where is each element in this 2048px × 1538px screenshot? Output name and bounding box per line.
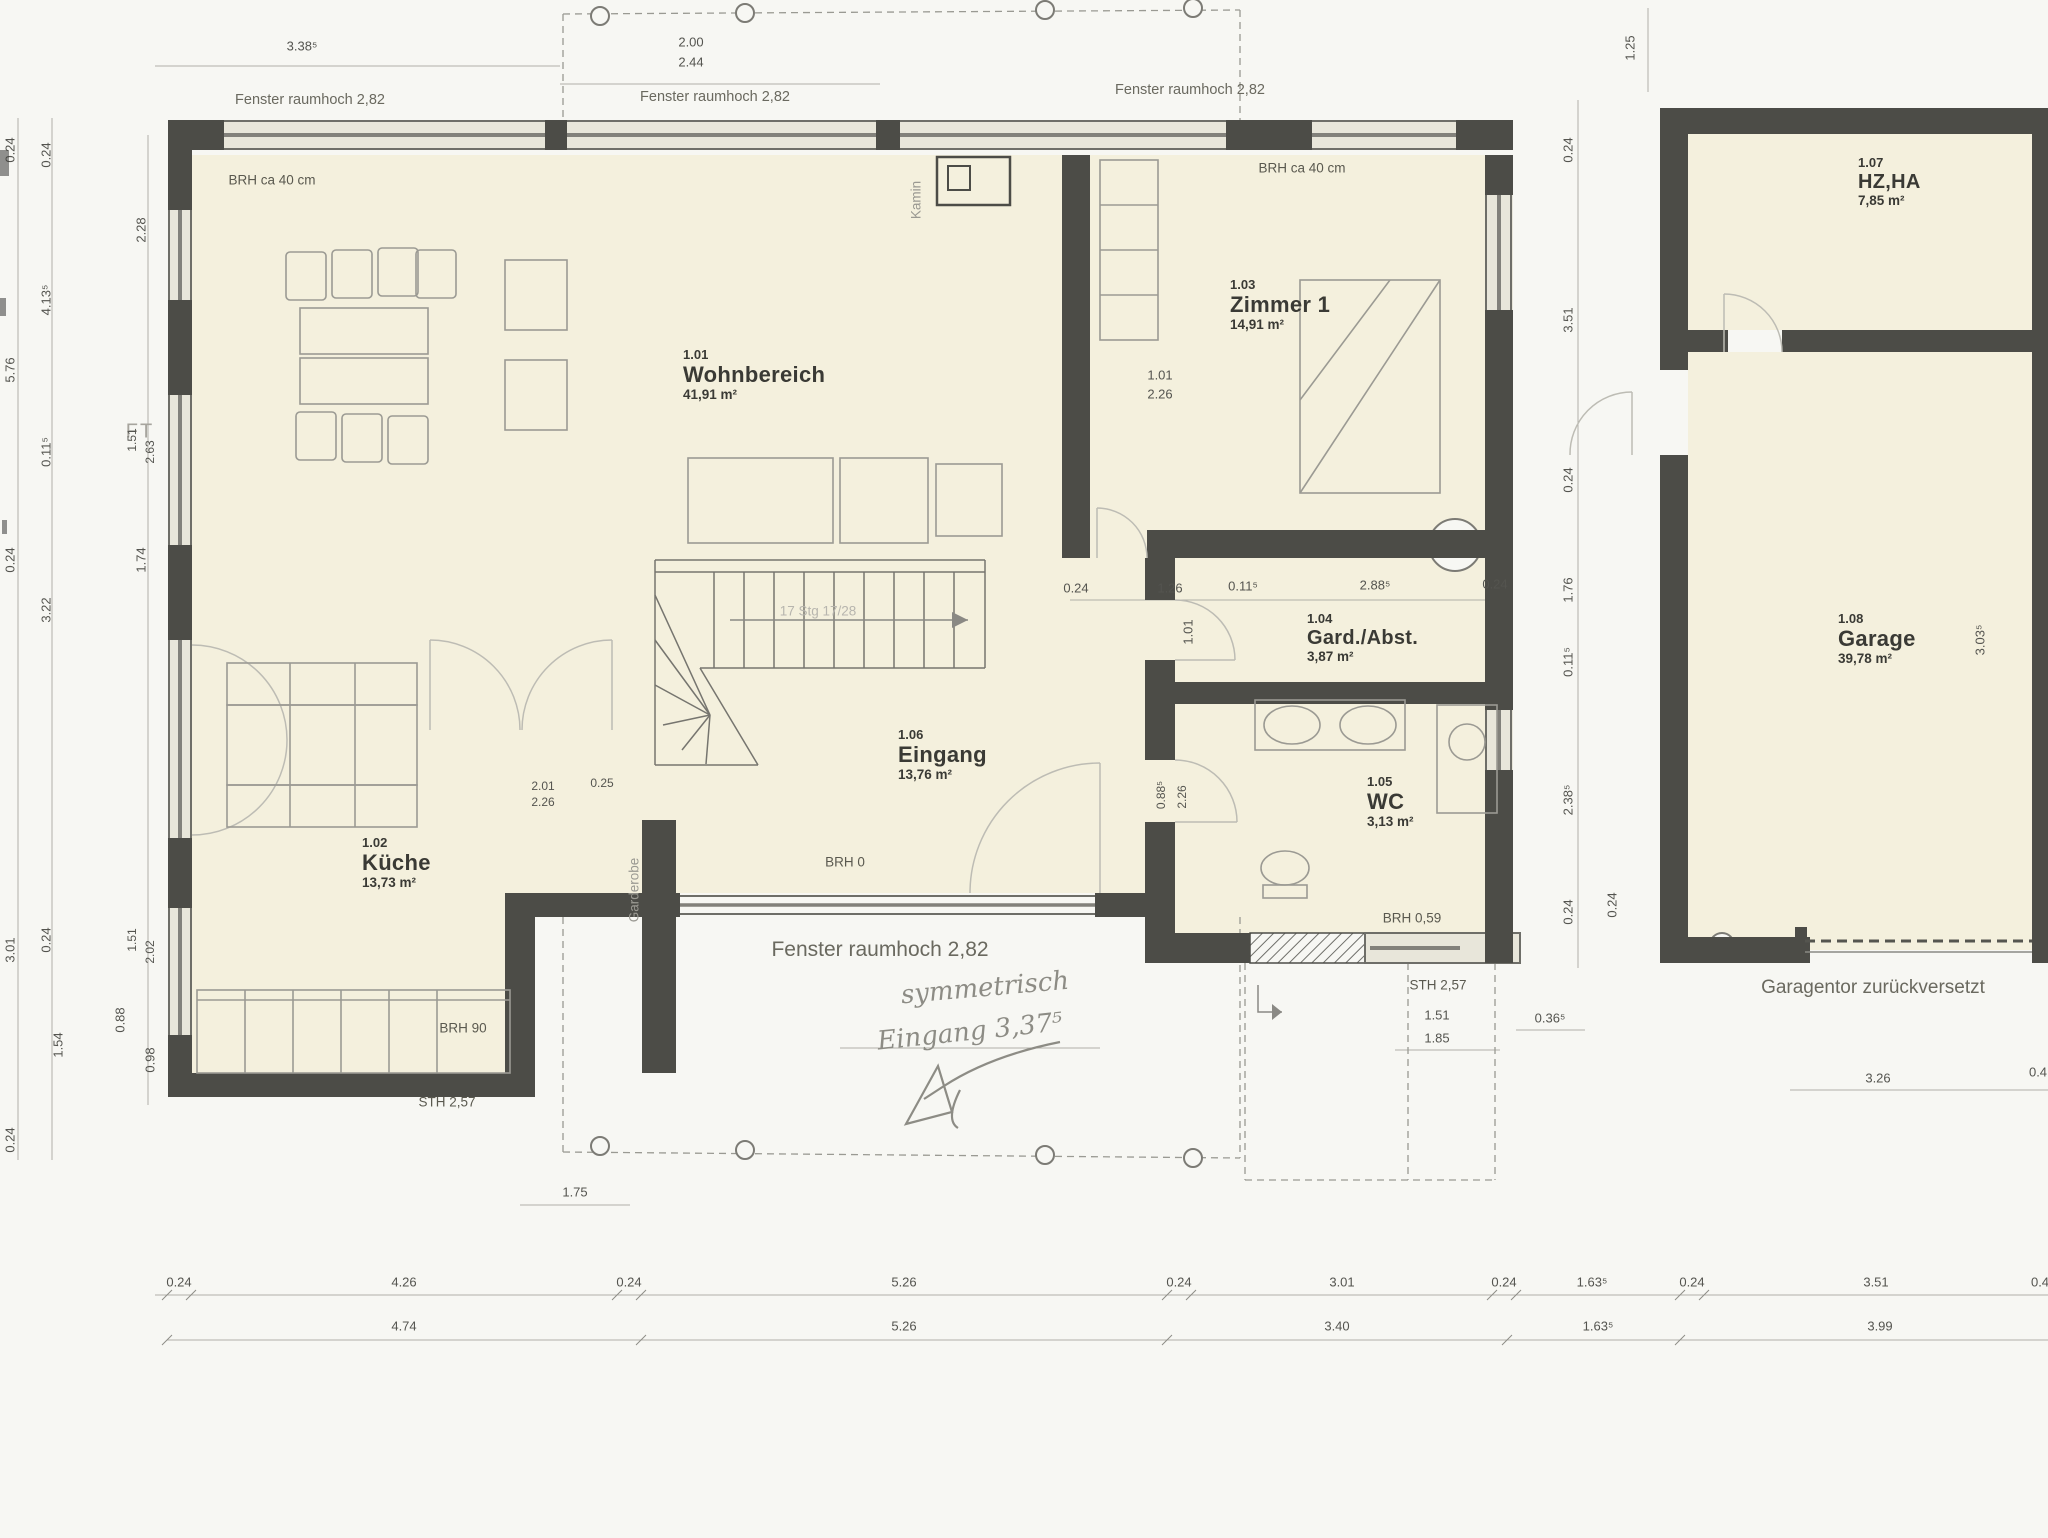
- dim-left-mid-1: 4.13⁵: [39, 285, 54, 316]
- floor-plan-scan: 1.01 Wohnbereich 41,91 m² 1.02 Küche 13,…: [0, 0, 2048, 1538]
- dim-b1-7: 1.63⁵: [1577, 1275, 1608, 1290]
- lintel-label-kitchen: STH 2,57: [418, 1095, 475, 1110]
- dim-top-1: 2.00: [678, 35, 703, 50]
- sill-height-label-right: BRH ca 40 cm: [1258, 161, 1345, 176]
- dim-terrace: 1.75: [562, 1185, 587, 1200]
- dim-b1-2: 0.24: [616, 1275, 641, 1290]
- dim-garage-bottom-0: 3.26: [1865, 1071, 1890, 1086]
- dim-left-outer-2: 0.24: [3, 547, 18, 572]
- sill-height-label-left: BRH ca 40 cm: [228, 173, 315, 188]
- dim-kitchen-door-gap: 0.25: [590, 776, 613, 790]
- dim-b2-2: 3.40: [1324, 1319, 1349, 1334]
- dim-b2-3: 1.63⁵: [1583, 1319, 1614, 1334]
- room-name: Gard./Abst.: [1307, 627, 1418, 649]
- dim-right-6: 0.24: [1561, 899, 1576, 924]
- room-name: Wohnbereich: [683, 363, 825, 388]
- room-number: 1.02: [362, 836, 431, 851]
- dim-left-inner-0: 2.28: [134, 217, 149, 242]
- dim-wc-door-w: 0.88⁵: [1154, 781, 1168, 809]
- dim-left-inner-4: 1.51: [125, 928, 139, 951]
- room-fills: [190, 132, 2032, 1073]
- dim-right-1: 3.51: [1561, 307, 1576, 332]
- dim-left-outer-3: 3.01: [3, 937, 18, 962]
- room-label-garage: 1.08 Garage 39,78 m²: [1838, 612, 1916, 666]
- dim-b1-9: 3.51: [1863, 1275, 1888, 1290]
- sill-height-label-brh90: BRH 90: [439, 1021, 486, 1036]
- room-number: 1.04: [1307, 612, 1418, 627]
- dim-left-outer-1: 5.76: [3, 357, 18, 382]
- room-area: 7,85 m²: [1858, 193, 1921, 208]
- dim-kitchen-window: 0.88: [113, 1007, 128, 1032]
- dim-left-inner-3: 1.74: [134, 547, 149, 572]
- room-label-kueche: 1.02 Küche 13,73 m²: [362, 836, 431, 890]
- dim-left-mid-0: 0.24: [39, 142, 54, 167]
- dim-b1-0: 0.24: [166, 1275, 191, 1290]
- dim-b2-1: 5.26: [891, 1319, 916, 1334]
- window-label-top-left: Fenster raumhoch 2,82: [235, 92, 385, 108]
- dim-zimmer-door-h: 2.26: [1147, 387, 1172, 402]
- room-area: 14,91 m²: [1230, 317, 1330, 332]
- room-number: 1.06: [898, 728, 987, 743]
- scan-smudge: [2, 520, 7, 534]
- handwritten-arrow-sketch: [906, 1042, 1060, 1128]
- dim-wc-door-h: 2.26: [1175, 785, 1189, 808]
- scan-smudge: [0, 298, 6, 316]
- dim-left-mid-2: 0.11⁵: [39, 437, 54, 467]
- dim-left-outer-4: 0.24: [3, 1127, 18, 1152]
- dim-b1-10: 0.4: [2031, 1275, 2048, 1290]
- garage-door-note: Garagentor zurückversetzt: [1761, 977, 1985, 999]
- dim-right-3: 1.76: [1561, 577, 1576, 602]
- dim-right-5: 2.38⁵: [1561, 785, 1576, 816]
- dim-corridor-4: 0.24: [1482, 577, 1507, 592]
- plan-linework: [0, 0, 2048, 1538]
- kamin-label: Kamin: [909, 181, 924, 219]
- scan-smudge: [0, 150, 9, 176]
- dim-b1-4: 0.24: [1166, 1275, 1191, 1290]
- dim-left-mid-3: 3.22: [39, 597, 54, 622]
- room-area: 13,76 m²: [898, 767, 987, 782]
- dim-left-mid-5: 1.54: [51, 1032, 66, 1057]
- room-name: Küche: [362, 851, 431, 876]
- dim-gard-door: 1.01: [1181, 619, 1196, 644]
- dim-left-inner-1: 1.51: [125, 428, 139, 451]
- stairs-label: 17 Stg 17/28: [780, 604, 857, 619]
- dim-kitchen-door-w: 2.01: [531, 779, 554, 793]
- dim-kitchen-door-h: 2.26: [531, 795, 554, 809]
- room-label-eingang: 1.06 Eingang 13,76 m²: [898, 728, 987, 782]
- dim-right-4: 0.11⁵: [1561, 647, 1576, 677]
- room-number: 1.01: [683, 348, 825, 363]
- dim-left-inner-2: 2.63: [143, 440, 157, 463]
- dim-top-3: 1.25: [1623, 35, 1638, 60]
- room-area: 41,91 m²: [683, 387, 825, 402]
- dim-b1-5: 3.01: [1329, 1275, 1354, 1290]
- dim-b1-8: 0.24: [1679, 1275, 1704, 1290]
- dim-zimmer-door-w: 1.01: [1147, 368, 1172, 383]
- room-name: WC: [1367, 790, 1414, 815]
- dim-corridor-1: 1.26: [1157, 581, 1182, 596]
- room-number: 1.08: [1838, 612, 1916, 627]
- dim-b2-4: 3.99: [1867, 1319, 1892, 1334]
- dim-top-0: 3.38⁵: [287, 39, 318, 54]
- room-name: HZ,HA: [1858, 171, 1921, 193]
- dim-corridor-0: 0.24: [1063, 581, 1088, 596]
- dim-rl-2: 1.85: [1424, 1031, 1449, 1046]
- room-label-wohnbereich: 1.01 Wohnbereich 41,91 m²: [683, 348, 825, 402]
- dim-right-0: 0.24: [1561, 137, 1576, 162]
- dim-top-2: 2.44: [678, 55, 703, 70]
- garderobe-label: Garderobe: [627, 858, 642, 923]
- dim-corridor-3: 2.88⁵: [1360, 578, 1391, 593]
- dim-garage-bottom-1: 0.4: [2029, 1065, 2047, 1080]
- room-label-zimmer1: 1.03 Zimmer 1 14,91 m²: [1230, 278, 1330, 332]
- window-label-top-center: Fenster raumhoch 2,82: [640, 89, 790, 105]
- room-number: 1.07: [1858, 156, 1921, 171]
- sill-height-label-brh0: BRH 0: [825, 855, 865, 870]
- room-area: 3,87 m²: [1307, 649, 1418, 664]
- room-label-hz-ha: 1.07 HZ,HA 7,85 m²: [1858, 156, 1921, 208]
- window-label-top-right: Fenster raumhoch 2,82: [1115, 82, 1265, 98]
- dim-right-2: 0.24: [1561, 467, 1576, 492]
- dim-b1-1: 4.26: [391, 1275, 416, 1290]
- room-name: Eingang: [898, 743, 987, 768]
- room-label-wc: 1.05 WC 3,13 m²: [1367, 775, 1414, 829]
- room-label-gard-abst: 1.04 Gard./Abst. 3,87 m²: [1307, 612, 1418, 664]
- room-number: 1.03: [1230, 278, 1330, 293]
- dim-left-inner-5: 2.02: [143, 940, 157, 963]
- room-area: 13,73 m²: [362, 875, 431, 890]
- dim-b1-6: 0.24: [1491, 1275, 1516, 1290]
- dim-left-inner-6: 0.98: [143, 1047, 158, 1072]
- window-label-bottom: Fenster raumhoch 2,82: [771, 938, 988, 962]
- dim-rl-3: 0.36⁵: [1535, 1011, 1566, 1026]
- dim-b1-3: 5.26: [891, 1275, 916, 1290]
- room-name: Zimmer 1: [1230, 293, 1330, 318]
- room-area: 39,78 m²: [1838, 651, 1916, 666]
- dim-left-mid-4: 0.24: [39, 927, 54, 952]
- sill-height-label-brh059: BRH 0,59: [1383, 911, 1442, 926]
- room-number: 1.05: [1367, 775, 1414, 790]
- dim-rl-4: 0.24: [1605, 892, 1620, 917]
- room-area: 3,13 m²: [1367, 814, 1414, 829]
- dim-b2-0: 4.74: [391, 1319, 416, 1334]
- dim-corridor-2: 0.11⁵: [1228, 579, 1258, 594]
- room-name: Garage: [1838, 627, 1916, 652]
- lintel-label-wc: STH 2,57: [1409, 978, 1466, 993]
- dim-rl-1: 1.51: [1424, 1008, 1449, 1023]
- dim-garage-side: 3.03⁵: [1973, 625, 1988, 656]
